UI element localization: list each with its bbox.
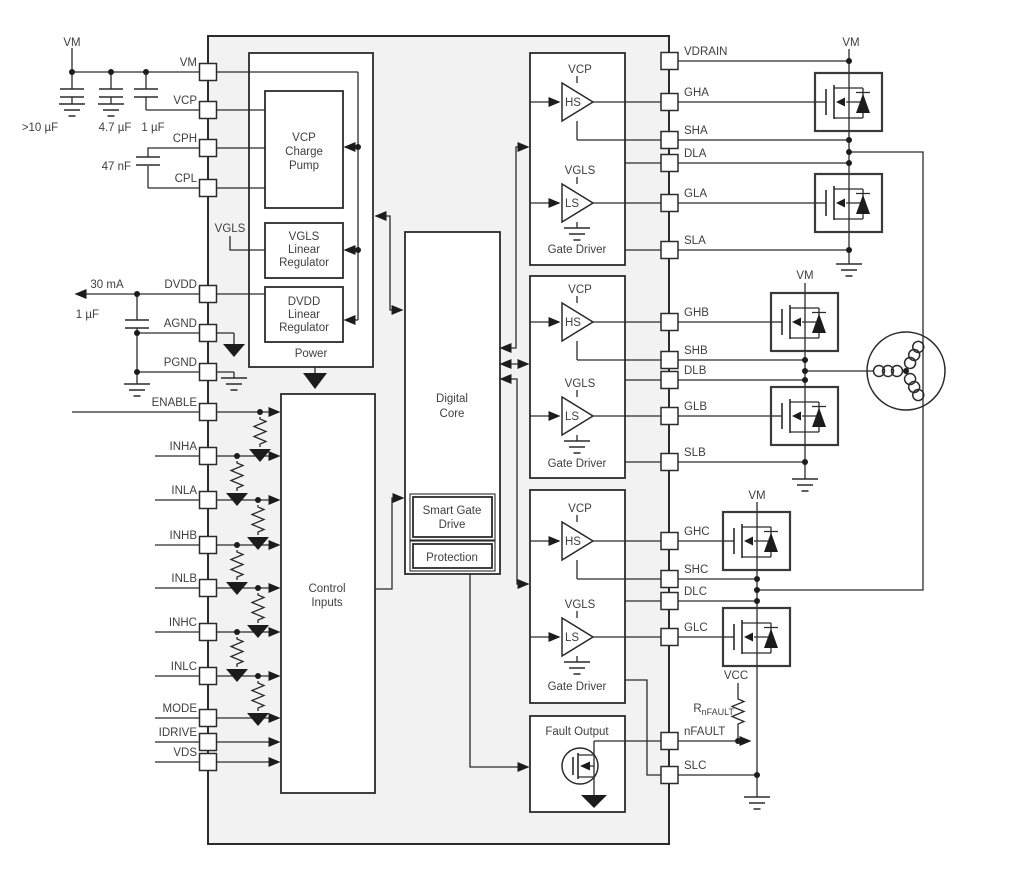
vm-supply-label: VM (63, 37, 80, 49)
vcp-label: VCP (568, 284, 592, 296)
pin-box-inhc (200, 624, 217, 641)
vm-phase-a-label: VM (842, 37, 859, 49)
control-inputs-label-1: Control (308, 583, 345, 595)
pin-label-vcp: VCP (173, 95, 197, 107)
pin-box-inla (200, 492, 217, 509)
ls-label: LS (565, 198, 579, 210)
pin-label-glc: GLC (684, 622, 708, 634)
ground-icon (124, 384, 150, 396)
dvdd-reg-label-1: DVDD (288, 296, 321, 308)
smart-gate-drive-block (413, 497, 492, 537)
dvdd-reg-label-3: Regulator (279, 322, 329, 334)
pin-labels-right: VDRAIN GHA SHA DLA GLA SLA GHB SHB DLB G… (684, 46, 727, 772)
pin-box-shb (661, 352, 678, 369)
pin-box-dla (661, 155, 678, 172)
pin-label-dla: DLA (684, 148, 707, 160)
cap-4u7-icon (99, 89, 123, 97)
pin-label-vds: VDS (173, 747, 197, 759)
pin-label-gha: GHA (684, 87, 709, 99)
ground-icon (792, 479, 818, 491)
vgls-node-label: VGLS (215, 223, 246, 235)
vcp-label: VCP (568, 503, 592, 515)
ls-label: LS (565, 411, 579, 423)
gate-driver-label: Gate Driver (548, 458, 607, 470)
cap-4u7-value: 4.7 µF (99, 122, 132, 134)
pin-box-idrive (200, 734, 217, 751)
vcp-label: VCP (568, 64, 592, 76)
pin-label-sla: SLA (684, 235, 706, 247)
digital-core-label-2: Core (440, 408, 465, 420)
dvdd-capacitor-icon (125, 320, 149, 328)
pin-box-nfault (661, 733, 678, 750)
pin-box-inlb (200, 580, 217, 597)
pin-label-vdrain: VDRAIN (684, 46, 727, 58)
mosfet-high-side-c-icon (723, 512, 790, 570)
mosfet-high-side-a-icon (815, 73, 882, 131)
pin-label-nfault: nFAULT (684, 726, 725, 738)
charge-pump-label-3: Pump (289, 160, 319, 172)
gate-driver-a-block (530, 53, 625, 265)
pin-box-enable (200, 404, 217, 421)
control-inputs-label-2: Inputs (311, 597, 343, 609)
pin-box-vds (200, 754, 217, 771)
pin-box-dlb (661, 372, 678, 389)
hs-label: HS (565, 536, 581, 548)
bulk-cap-value: >10 µF (22, 122, 58, 134)
motor (867, 332, 945, 410)
pin-label-idrive: IDRIVE (159, 727, 198, 739)
pin-label-cpl: CPL (175, 173, 198, 185)
digital-core-label-1: Digital (436, 393, 468, 405)
schematic-svg: VM VCP CPH CPL DVDD AGND PGND ENABLE INH… (0, 0, 1030, 875)
hs-label: HS (565, 97, 581, 109)
pin-label-inlb: INLB (171, 573, 197, 585)
pin-label-ghc: GHC (684, 526, 710, 538)
smart-gate-drive-label-1: Smart Gate (423, 505, 482, 517)
mosfet-low-side-a-icon (815, 174, 882, 232)
pin-label-slb: SLB (684, 447, 706, 459)
cap-1u-value: 1 µF (141, 122, 164, 134)
pin-label-dlb: DLB (684, 365, 707, 377)
rnfault-subscript: nFAULT (702, 707, 735, 717)
pin-box-inha (200, 448, 217, 465)
pin-box-slc (661, 767, 678, 784)
pin-box-ghb (661, 314, 678, 331)
pin-box-glc (661, 629, 678, 646)
pin-label-cph: CPH (173, 133, 197, 145)
pin-label-glb: GLB (684, 401, 707, 413)
pin-labels-left: VM VCP CPH CPL DVDD AGND PGND ENABLE INH… (152, 57, 198, 759)
pin-box-glb (661, 408, 678, 425)
ls-label: LS (565, 632, 579, 644)
vcc-label: VCC (724, 670, 748, 682)
pin-label-shb: SHB (684, 345, 708, 357)
pin-box-dlc (661, 593, 678, 610)
smart-gate-drive-label-2: Drive (439, 519, 466, 531)
pin-box-shc (661, 571, 678, 588)
pin-label-enable: ENABLE (152, 397, 198, 409)
hs-label: HS (565, 317, 581, 329)
pin-label-shc: SHC (684, 564, 708, 576)
pin-label-inla: INLA (171, 485, 197, 497)
mosfet-low-side-c-icon (723, 608, 790, 666)
pin-box-sha (661, 132, 678, 149)
motor-winding-icon (903, 340, 926, 371)
dvdd-reg-label-2: Linear (288, 309, 320, 321)
ground-icon (836, 264, 862, 276)
pin-label-mode: MODE (163, 703, 198, 715)
pin-label-dvdd: DVDD (164, 279, 197, 291)
pin-label-ghb: GHB (684, 307, 709, 319)
mosfet-low-side-b-icon (771, 387, 838, 445)
charge-pump-label-1: VCP (292, 132, 316, 144)
vm-phase-c-label: VM (748, 490, 765, 502)
pin-box-slb (661, 454, 678, 471)
pin-box-vdrain (661, 53, 678, 70)
pin-label-inlc: INLC (171, 661, 197, 673)
vgls-reg-label-2: Linear (288, 244, 320, 256)
vgls-label: VGLS (565, 165, 596, 177)
pin-box-cpl (200, 180, 217, 197)
pin-box-gha (661, 94, 678, 111)
pin-label-pgnd: PGND (164, 357, 197, 369)
pin-box-gla (661, 195, 678, 212)
pin-box-cph (200, 140, 217, 157)
gate-driver-label: Gate Driver (548, 681, 607, 693)
rnfault-prefix: R (693, 703, 701, 715)
pin-label-inhb: INHB (170, 530, 198, 542)
block-diagram: VM VCP CPH CPL DVDD AGND PGND ENABLE INH… (0, 0, 1030, 875)
mosfet-high-side-b-icon (771, 293, 838, 351)
pin-box-dvdd (200, 286, 217, 303)
pin-box-vcp (200, 102, 217, 119)
vgls-label: VGLS (565, 378, 596, 390)
pin-label-inha: INHA (170, 441, 198, 453)
vm-phase-b-label: VM (796, 270, 813, 282)
vgls-label: VGLS (565, 599, 596, 611)
pin-box-agnd (200, 325, 217, 342)
cp-cap-value: 47 nF (102, 161, 131, 173)
ground-icon (744, 797, 770, 809)
vgls-reg-label-3: Regulator (279, 257, 329, 269)
charge-pump-capacitor-icon (136, 157, 160, 165)
pin-label-vm: VM (180, 57, 197, 69)
gate-driver-label: Gate Driver (548, 244, 607, 256)
dvdd-current-label: 30 mA (90, 279, 124, 291)
pin-label-sha: SHA (684, 125, 708, 137)
charge-pump-label-2: Charge (285, 146, 323, 158)
power-label: Power (295, 348, 328, 360)
protection-label: Protection (426, 552, 478, 564)
pin-label-inhc: INHC (169, 617, 197, 629)
pin-label-gla: GLA (684, 188, 707, 200)
pin-label-agnd: AGND (164, 318, 197, 330)
pin-label-slc: SLC (684, 760, 706, 772)
ground-icon (98, 104, 124, 116)
pin-box-inlc (200, 668, 217, 685)
pin-box-ghc (661, 533, 678, 550)
rnfault-label: RnFAULT (693, 703, 734, 717)
pin-box-sla (661, 242, 678, 259)
motor-winding-icon (874, 366, 903, 377)
vgls-reg-label-1: VGLS (289, 231, 320, 243)
pin-box-vm (200, 64, 217, 81)
capacitors-left (59, 89, 160, 396)
ground-icon (59, 104, 85, 116)
pin-box-mode (200, 710, 217, 727)
dvdd-cap-value: 1 µF (76, 309, 99, 321)
fault-output-label: Fault Output (545, 726, 609, 738)
pin-box-pgnd (200, 364, 217, 381)
bulk-capacitor-icon (60, 89, 84, 97)
pin-box-inhb (200, 537, 217, 554)
pin-label-dlc: DLC (684, 586, 707, 598)
cap-1u-icon (134, 89, 158, 97)
motor-winding-icon (903, 372, 926, 403)
